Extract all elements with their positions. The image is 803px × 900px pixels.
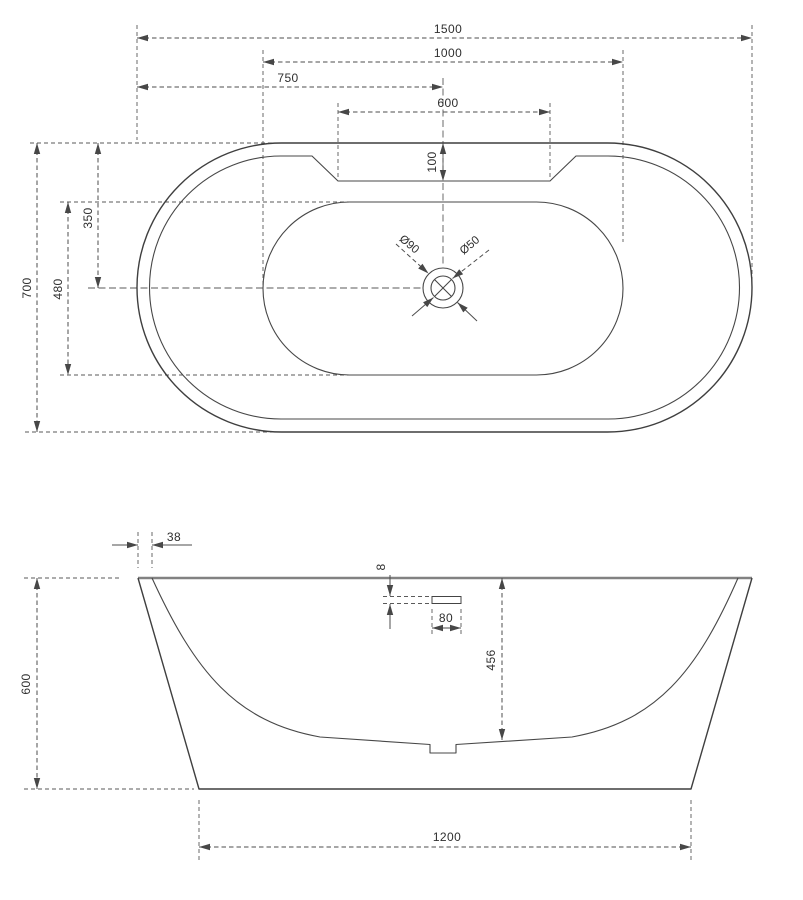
dim-label-600-notch: 600 [437, 96, 458, 110]
top-view-extension-lines [25, 25, 752, 432]
tub-outer-outline [137, 143, 752, 432]
dim-label-700: 700 [20, 277, 34, 298]
tub-outer-profile [138, 578, 752, 789]
technical-drawing-page: Ø90 Ø50 1500 1000 750 600 700 480 350 [0, 0, 803, 900]
overflow-slot [432, 597, 461, 604]
dim-label-350: 350 [81, 207, 95, 228]
dim-label-456: 456 [484, 649, 498, 670]
label-drain-hole-diameter: Ø50 [458, 234, 482, 257]
drain: Ø90 Ø50 [396, 233, 489, 321]
label-drain-outer-diameter: Ø90 [397, 233, 421, 256]
dim-label-80: 80 [439, 611, 453, 625]
tub-front-outlines [138, 578, 752, 789]
top-view-vertical-dimensions: 700 480 350 100 [20, 143, 443, 432]
leader-d50-solid [412, 298, 434, 317]
tub-plan-outlines [137, 143, 752, 432]
dim-label-1000: 1000 [434, 46, 462, 60]
bathtub-drawing-canvas: Ø90 Ø50 1500 1000 750 600 700 480 350 [0, 0, 803, 900]
dim-label-38: 38 [167, 530, 181, 544]
front-view: 38 600 8 80 456 1200 [19, 530, 752, 862]
tub-inner-profile [152, 578, 738, 753]
dim-label-1500: 1500 [434, 22, 462, 36]
dim-label-480: 480 [51, 278, 65, 299]
tub-inner-rim-outline [149, 156, 739, 419]
dim-label-1200: 1200 [433, 830, 461, 844]
dim-label-8: 8 [374, 563, 388, 570]
front-view-extension-lines [24, 532, 691, 862]
top-view-horizontal-dimensions: 1500 1000 750 600 [137, 22, 752, 112]
leader-d90-solid [458, 303, 478, 322]
dim-label-600-height: 600 [19, 673, 33, 694]
dim-label-750: 750 [277, 71, 298, 85]
leader-d50-dashed [453, 250, 490, 279]
dim-label-100: 100 [425, 151, 439, 172]
top-view: Ø90 Ø50 1500 1000 750 600 700 480 350 [20, 22, 752, 432]
